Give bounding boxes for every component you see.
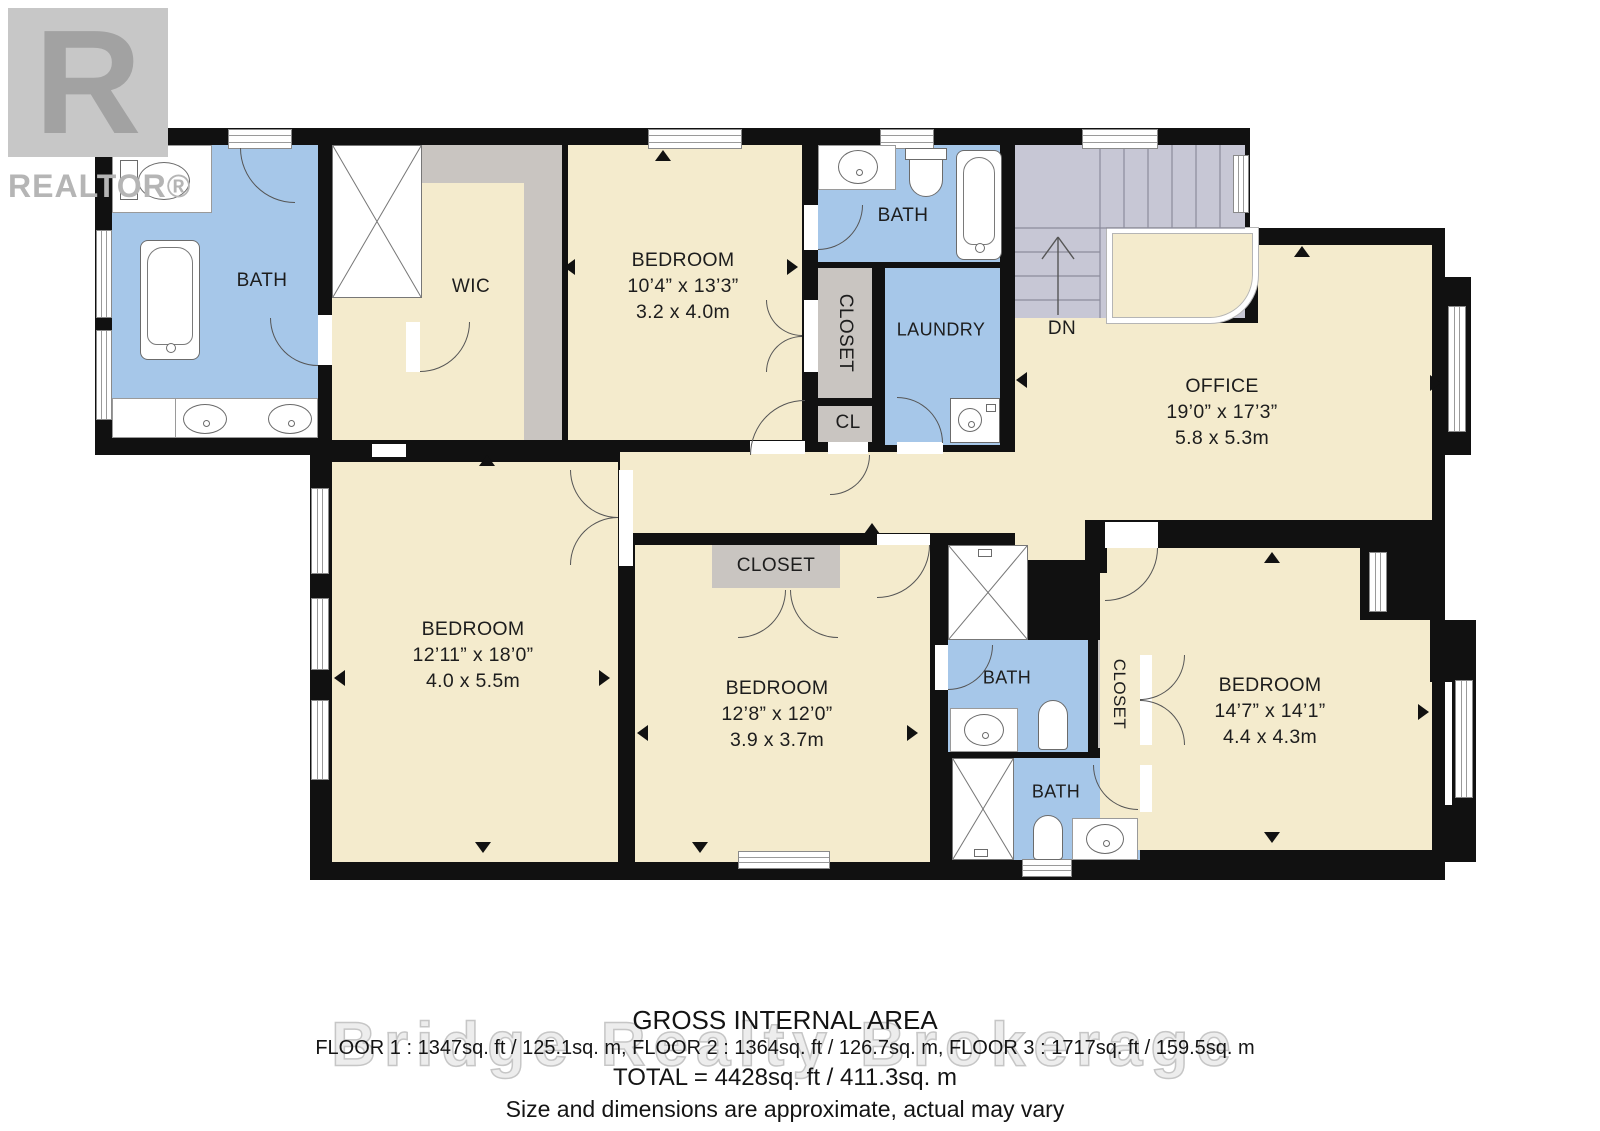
room-dim-ft: 12’11” x 18’0” [413,642,534,668]
dimension-marker [1294,246,1310,257]
room-name: BEDROOM [1214,672,1325,698]
window [311,488,329,574]
bathtub-icon [140,240,200,360]
dimension-marker [479,455,495,466]
room-label-office: OFFICE 19’0” x 17’3” 5.8 x 5.3m [1166,373,1277,451]
room-label-bedroom-mid: BEDROOM 12’8” x 12’0” 3.9 x 3.7m [721,675,832,753]
room-dim-ft: 14’7” x 14’1” [1214,698,1325,724]
realtor-logo-text: REALTOR® [8,168,191,205]
door-opening [935,645,948,690]
window [228,129,292,149]
room-dim-m: 4.0 x 5.5m [413,668,534,694]
dimension-marker [864,523,880,534]
sink-icon [964,714,1004,746]
room-dim-m: 5.8 x 5.3m [1166,425,1277,451]
room-dim-m: 3.9 x 3.7m [721,727,832,753]
room-label-closet-hall: CLOSET [834,294,856,372]
room-office-c [1258,245,1432,332]
dimension-marker [564,259,575,275]
shower-icon [948,545,1028,640]
dimension-marker [787,259,798,275]
room-dim-ft: 12’8” x 12’0” [721,701,832,727]
sink-icon [838,150,878,184]
footer-floor-areas: FLOOR 1 : 1347sq. ft / 125.1sq. m, FLOOR… [315,1037,1254,1060]
shower-icon [952,758,1014,860]
room-label-bath-mid: BATH [983,668,1031,689]
footer-disclaimer: Size and dimensions are approximate, act… [506,1096,1065,1123]
dimension-marker [1418,704,1429,720]
window [1369,552,1387,612]
toilet-icon [1033,815,1063,860]
footer-total-area: TOTAL = 4428sq. ft / 411.3sq. m [613,1064,957,1092]
room-name: BEDROOM [721,675,832,701]
window [311,598,329,670]
shower-icon [332,145,422,298]
room-label-closet-mid: CLOSET [737,555,815,577]
window [648,129,742,149]
dimension-marker [907,725,918,741]
door-opening [828,442,868,454]
room-dim-ft: 10’4” x 13’3” [627,273,738,299]
realtor-logo-icon: R [8,8,168,157]
wall-patch-step [1445,805,1476,862]
vanity-divider [175,399,176,437]
room-label-bath-master: BATH [237,270,288,292]
room-label-laundry: LAUNDRY [897,320,986,341]
door-opening [804,300,818,372]
door-opening [877,534,930,545]
door-opening [1105,522,1158,548]
room-name: OFFICE [1166,373,1277,399]
room-name: BEDROOM [627,247,738,273]
wic-builtin-side [524,183,562,440]
dimension-marker [692,842,708,853]
door-opening [804,205,818,250]
realtor-logo-letter: R [35,9,142,157]
room-dim-m: 4.4 x 4.3m [1214,724,1325,750]
room-label-bedroom-left: BEDROOM 12’11” x 18’0” 4.0 x 5.5m [413,616,534,694]
room-dim-ft: 19’0” x 17’3” [1166,399,1277,425]
room-label-cl: CL [835,412,860,434]
window [1082,129,1158,149]
window [96,330,112,420]
wic-builtin-top [420,145,562,183]
room-label-bath-hall: BATH [878,205,929,227]
window [311,700,329,780]
window [1455,680,1473,798]
dimension-marker [1016,372,1027,388]
sink-icon [268,404,312,434]
window [1022,859,1072,877]
sink-icon [183,404,227,434]
door-opening [318,315,332,365]
dimension-marker [1264,552,1280,563]
dimension-marker [655,150,671,161]
room-dim-m: 3.2 x 4.0m [627,299,738,325]
bathtub-icon [956,150,1002,260]
room-label-closet-right: CLOSET [1109,659,1129,729]
door-opening [619,470,633,566]
window [1448,306,1466,432]
room-name: BEDROOM [413,616,534,642]
stairs-treads [1015,145,1245,318]
shower-head-icon [978,549,992,557]
washer-door-icon [958,408,982,432]
door-opening [897,442,943,454]
dimension-marker [637,725,648,741]
door-opening [406,322,420,372]
toilet-icon [1038,700,1068,750]
washer-latch-icon [986,404,996,412]
wall-patch-step [1430,620,1476,682]
window [96,230,112,318]
room-label-bath-lower: BATH [1032,782,1080,803]
dimension-marker [475,842,491,853]
room-label-bedroom-right: BEDROOM 14’7” x 14’1” 4.4 x 4.3m [1214,672,1325,750]
wall-patch [1085,520,1107,573]
dimension-marker [1430,375,1441,391]
shower-head-icon [974,849,988,857]
toilet-icon [909,159,943,197]
dimension-marker [599,670,610,686]
sink-icon [1086,824,1124,854]
footer-title: GROSS INTERNAL AREA [632,1005,937,1036]
window [738,851,830,869]
floor-plan-canvas: BATH WIC BEDROOM 10’4” x 13’3” 3.2 x 4.0… [0,0,1600,1131]
dimension-marker [334,670,345,686]
door-opening [372,444,406,457]
window [1233,155,1249,213]
door-opening [1140,765,1152,812]
room-label-wic: WIC [452,276,490,298]
stairs-dn-label: DN [1048,318,1076,340]
dimension-marker [1264,832,1280,843]
room-label-bedroom-top: BEDROOM 10’4” x 13’3” 3.2 x 4.0m [627,247,738,325]
